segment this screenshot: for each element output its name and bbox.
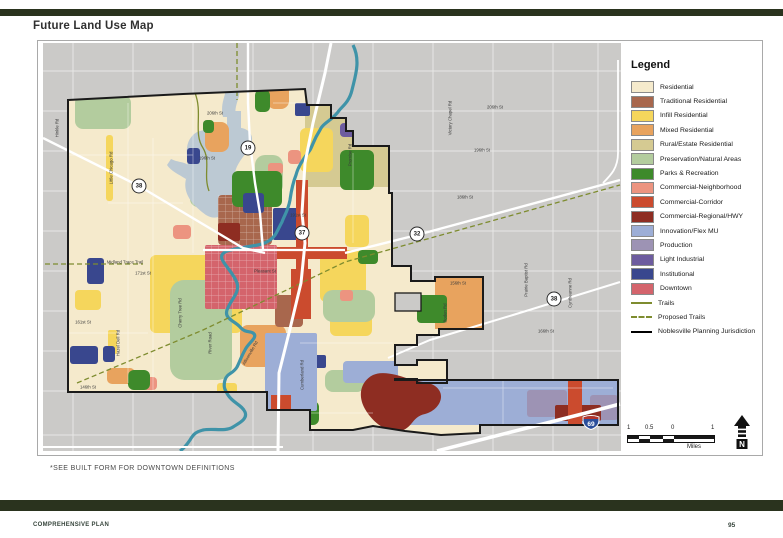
legend-item-label: Mixed Residential (660, 127, 714, 134)
legend-line-symbol (631, 302, 652, 304)
bottom-accent-bar (0, 500, 783, 511)
legend-item: Innovation/Flex MU (623, 224, 758, 238)
legend-item-label: Commercial-Regional/HWY (660, 213, 743, 220)
legend-item-label: Infill Residential (660, 112, 708, 119)
legend-item: Light Industrial (623, 253, 758, 267)
legend-items: ResidentialTraditional ResidentialInfill… (623, 80, 758, 296)
legend-title: Legend (631, 59, 758, 71)
legend-item-label: Light Industrial (660, 256, 704, 263)
legend-item: Mixed Residential (623, 123, 758, 137)
map-note: *SEE BUILT FORM FOR DOWNTOWN DEFINITIONS (50, 465, 235, 472)
legend-line-item: Noblesville Planning Jurisdiction (623, 325, 758, 339)
scale-tick-label: 0 (671, 425, 674, 431)
north-arrow: N (731, 415, 753, 451)
legend-swatch (631, 81, 654, 93)
legend-swatch (631, 182, 654, 194)
legend-item-label: Production (660, 242, 693, 249)
top-accent-bar (0, 9, 783, 16)
state-route-shield: 38 (132, 179, 147, 194)
scale-bar: 10.501 Miles (627, 425, 727, 451)
legend-item: Downtown (623, 281, 758, 295)
scale-tick-label: 1 (711, 425, 714, 431)
legend-swatch (631, 254, 654, 266)
page-title: Future Land Use Map (33, 20, 154, 32)
footer-document-title: COMPREHENSIVE PLAN (33, 522, 109, 528)
legend-item: Commercial-Corridor (623, 195, 758, 209)
page-number: 95 (728, 522, 735, 529)
land-use-map: 206th St196th St191st St171st St161st St… (43, 43, 621, 451)
legend-swatch (631, 96, 654, 108)
legend-line-symbol (631, 331, 652, 333)
map-frame: 206th St196th St191st St171st St161st St… (37, 40, 763, 456)
state-route-shield: 37 (295, 226, 310, 241)
legend-item: Rural/Estate Residential (623, 138, 758, 152)
legend-item-label: Traditional Residential (660, 98, 727, 105)
legend-item-label: Innovation/Flex MU (660, 228, 719, 235)
legend-swatch (631, 153, 654, 165)
legend-swatch (631, 283, 654, 295)
legend-item-label: Trails (658, 300, 674, 307)
north-arrow-head (734, 415, 750, 426)
legend-item-label: Rural/Estate Residential (660, 141, 733, 148)
legend-item-label: Noblesville Planning Jurisdiction (658, 328, 755, 335)
legend-item: Institutional (623, 267, 758, 281)
legend-item: Commercial-Regional/HWY (623, 210, 758, 224)
legend-item: Parks & Recreation (623, 166, 758, 180)
legend-swatch (631, 110, 654, 122)
scale-tick-label: 0.5 (645, 425, 653, 431)
legend-item-label: Commercial-Corridor (660, 199, 723, 206)
legend-item-label: Residential (660, 84, 694, 91)
legend-item: Residential (623, 80, 758, 94)
svg-text:69: 69 (587, 421, 595, 428)
legend-swatch (631, 196, 654, 208)
svg-text:N: N (739, 440, 745, 449)
state-route-shield: 32 (410, 227, 425, 242)
legend-line-items: TrailsProposed TrailsNoblesville Plannin… (623, 296, 758, 339)
legend-item-label: Downtown (660, 285, 692, 292)
legend-item-label: Institutional (660, 271, 694, 278)
scale-tick-label: 1 (627, 425, 630, 431)
legend-line-item: Trails (623, 296, 758, 310)
legend-swatch (631, 211, 654, 223)
legend-item-label: Preservation/Natural Areas (660, 156, 741, 163)
legend-swatch (631, 225, 654, 237)
state-route-shield: 19 (241, 141, 256, 156)
legend-item: Commercial-Neighborhood (623, 181, 758, 195)
legend-swatch (631, 168, 654, 180)
legend-item: Production (623, 238, 758, 252)
scale-bar-graphic (627, 435, 715, 443)
comprehensive-plan-page: { "page": { "title": "Future Land Use Ma… (0, 0, 783, 538)
legend-item: Traditional Residential (623, 94, 758, 108)
scale-unit-label: Miles (687, 444, 701, 450)
legend-item-label: Parks & Recreation (660, 170, 719, 177)
legend-swatch (631, 124, 654, 136)
legend-item-label: Commercial-Neighborhood (660, 184, 741, 191)
legend-swatch (631, 268, 654, 280)
legend-swatch (631, 139, 654, 151)
legend-swatch (631, 239, 654, 251)
map-shields: 193837323869 (43, 43, 621, 451)
map-legend: Legend ResidentialTraditional Residentia… (623, 43, 758, 451)
legend-item-label: Proposed Trails (658, 314, 705, 321)
legend-line-item: Proposed Trails (623, 310, 758, 324)
state-route-shield: 38 (547, 292, 562, 307)
legend-item: Infill Residential (623, 109, 758, 123)
legend-item: Preservation/Natural Areas (623, 152, 758, 166)
legend-line-symbol (631, 316, 652, 318)
